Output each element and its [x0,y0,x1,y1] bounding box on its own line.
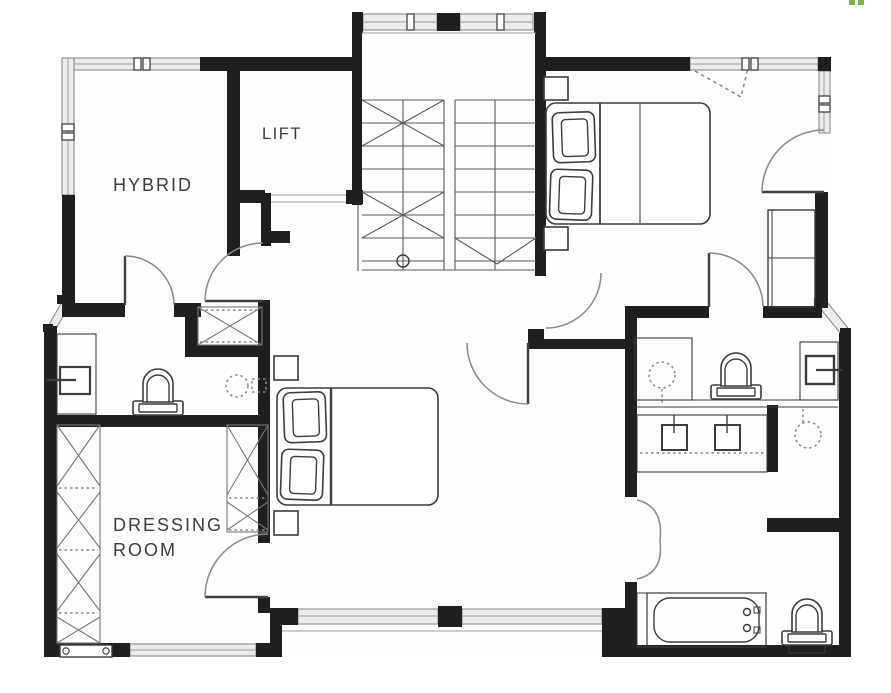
floor-plan-page: HYBRID LIFT DRESSING ROOM [0,0,891,693]
bedside-table [274,356,298,380]
bedside-table [544,77,568,100]
label-lift: LIFT [262,125,302,143]
label-dressing-line1: DRESSING [113,515,223,535]
label-dressing-line2: ROOM [113,540,177,560]
bedside-table [274,511,298,535]
logo-fragment [849,0,864,5]
floor-tint [62,12,851,657]
radiator [60,645,112,657]
floor-plan-drawing: HYBRID LIFT DRESSING ROOM [0,0,891,693]
label-hybrid: HYBRID [113,175,193,195]
bed-top-right [544,77,710,250]
bedside-table [544,227,568,250]
